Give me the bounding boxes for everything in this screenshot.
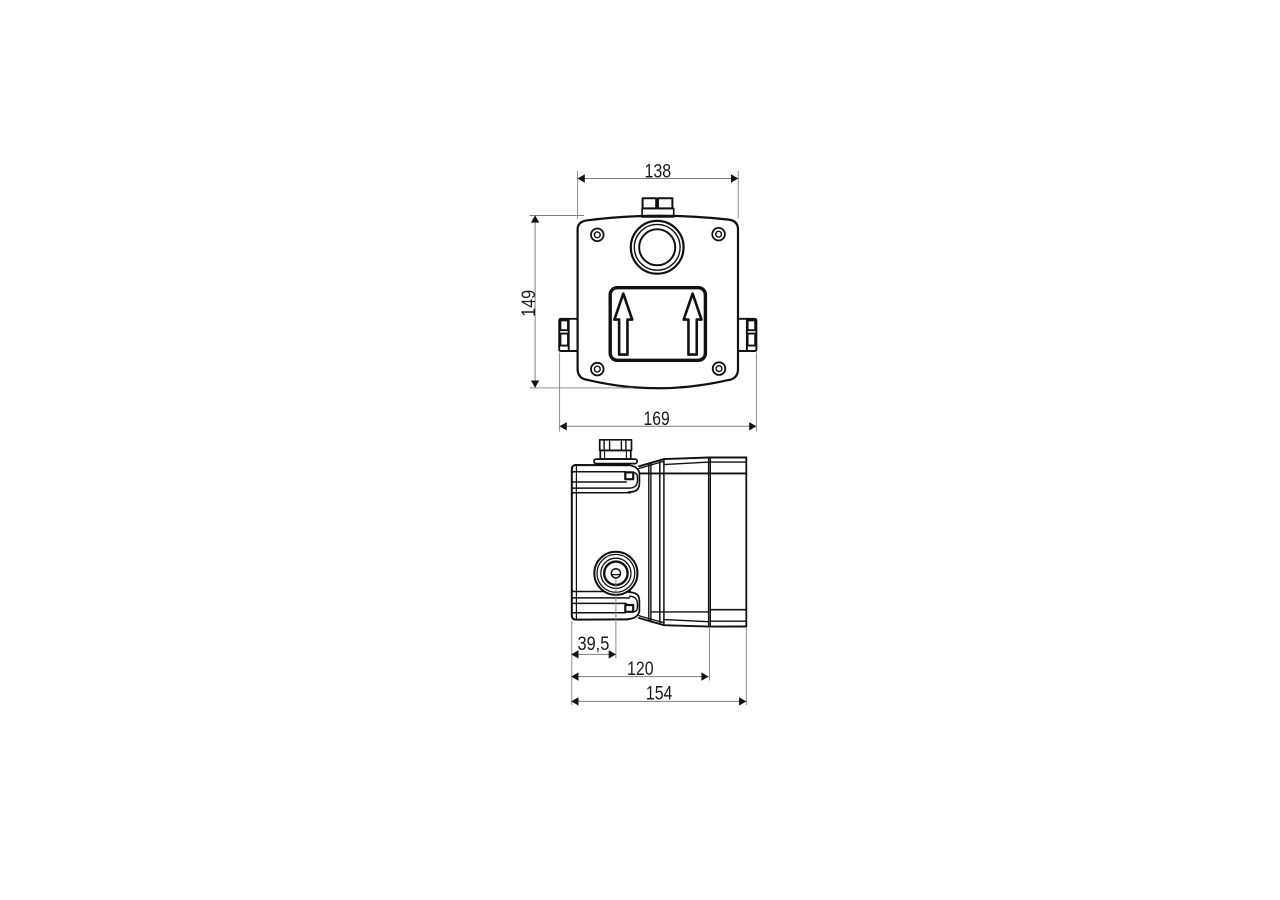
svg-text:149: 149 xyxy=(518,290,540,317)
svg-text:169: 169 xyxy=(644,408,670,430)
svg-text:138: 138 xyxy=(645,160,672,182)
svg-text:120: 120 xyxy=(627,658,654,680)
svg-text:154: 154 xyxy=(646,682,673,704)
svg-text:39,5: 39,5 xyxy=(578,633,610,655)
